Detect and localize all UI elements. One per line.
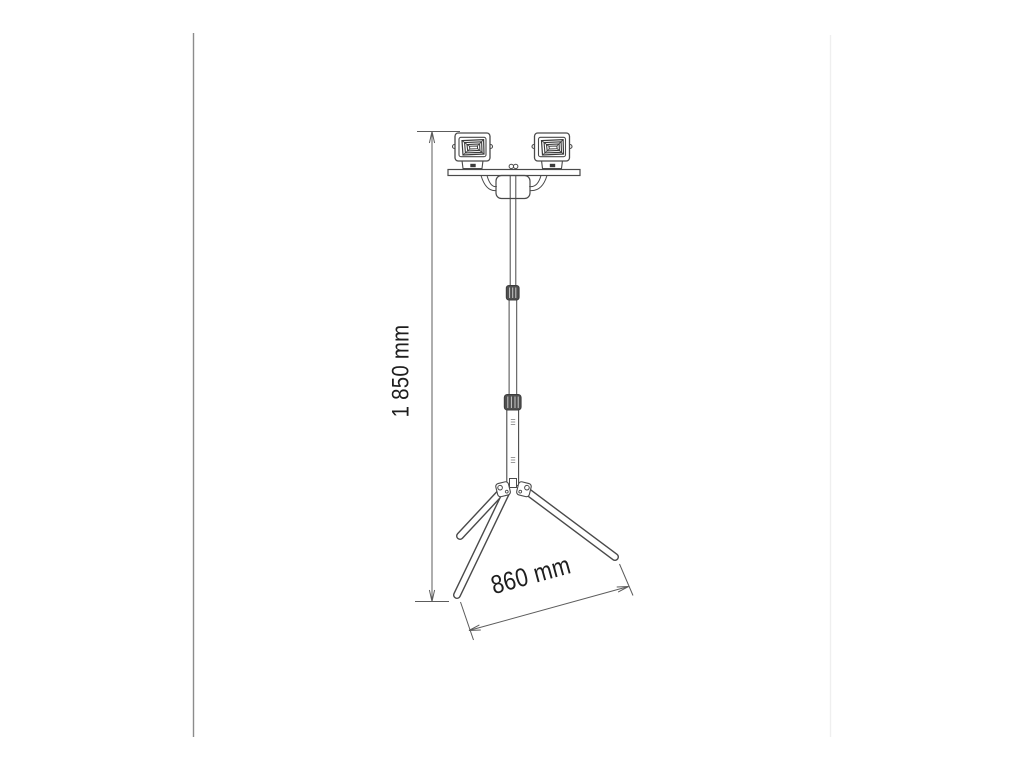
mounting-crossbar	[448, 170, 580, 176]
tripod-leg-right	[524, 489, 615, 557]
base-width-dimension-label: 860 mm	[488, 551, 574, 601]
floodlight-head-right	[532, 133, 572, 169]
telescopic-pole	[507, 176, 519, 486]
pole-clamp-lower	[504, 395, 521, 411]
floodlight-head-left	[453, 133, 493, 169]
height-dimension-label: 1 850 mm	[387, 325, 414, 418]
crossbar-wing-screws	[509, 164, 518, 168]
width-extension-right	[620, 564, 634, 596]
height-dimension	[415, 132, 460, 602]
product-dimension-diagram: 1 850 mm 860 mm	[0, 0, 1024, 768]
width-extension-left	[461, 602, 474, 640]
pole-clamp-upper	[506, 286, 519, 301]
tripod-light-drawing: 1 850 mm 860 mm	[0, 0, 1024, 768]
tripod-hub	[495, 479, 532, 498]
